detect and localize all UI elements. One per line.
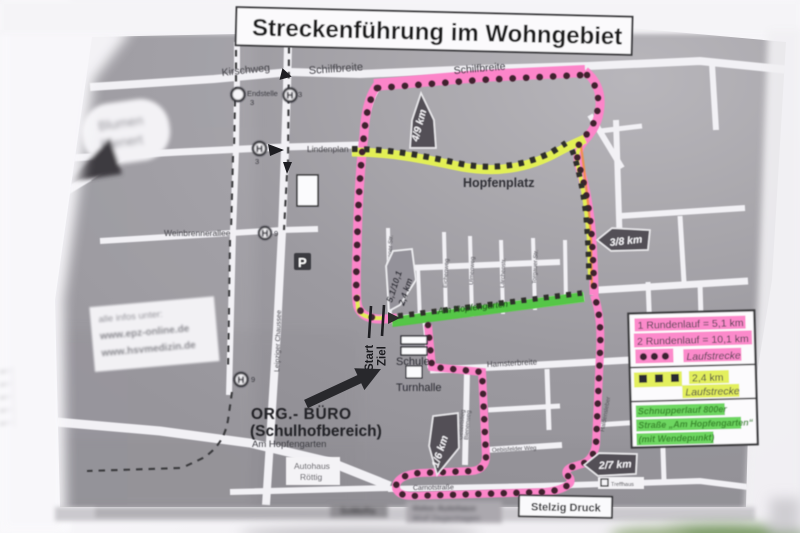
- svg-text:H: H: [256, 144, 263, 155]
- svg-text:Ziel: Ziel: [377, 346, 389, 366]
- svg-text:Laufstrecke: Laufstrecke: [686, 350, 741, 363]
- svg-text:Autohaus: Autohaus: [294, 461, 330, 471]
- svg-text:Lindenplan: Lindenplan: [307, 144, 349, 154]
- svg-text:P: P: [298, 255, 307, 270]
- svg-text:Am Hopfengarten: Am Hopfengarten: [252, 439, 326, 450]
- svg-text:2/7 km: 2/7 km: [598, 458, 632, 472]
- svg-text:3: 3: [298, 90, 302, 99]
- svg-text:Start: Start: [364, 345, 376, 371]
- svg-text:SoMeRa: SoMeRa: [340, 506, 377, 516]
- svg-text:9: 9: [274, 229, 278, 238]
- svg-text:Schule: Schule: [396, 356, 430, 368]
- svg-text:Wolf Degenhagen: Wolf Degenhagen: [412, 513, 480, 523]
- svg-text:Weinbrennerallee: Weinbrennerallee: [164, 228, 231, 238]
- svg-text:Röttig: Röttig: [300, 472, 322, 482]
- svg-text:Carnotstraße: Carnotstraße: [413, 484, 454, 492]
- svg-text:Endstelle: Endstelle: [247, 89, 278, 98]
- svg-text:Hopfenplatz: Hopfenplatz: [463, 176, 535, 190]
- svg-text:H: H: [238, 375, 245, 386]
- svg-text:H: H: [287, 91, 294, 102]
- svg-text:ORG.- BÜRO: ORG.- BÜRO: [251, 406, 352, 423]
- svg-text:H: H: [262, 229, 269, 240]
- svg-text:3: 3: [250, 98, 254, 107]
- svg-text:3: 3: [255, 157, 259, 166]
- svg-text:2,4 km: 2,4 km: [692, 372, 724, 385]
- svg-text:(Schulhofbereich): (Schulhofbereich): [250, 423, 382, 440]
- svg-text:9: 9: [251, 375, 255, 384]
- svg-text:Volvo Autohaus: Volvo Autohaus: [412, 503, 476, 513]
- svg-text:Stelzig Druck: Stelzig Druck: [531, 501, 602, 514]
- svg-text:Treffhaus: Treffhaus: [611, 482, 634, 488]
- svg-text:Laufstrecke: Laufstrecke: [685, 385, 740, 398]
- svg-text:Turnhalle: Turnhalle: [396, 382, 441, 394]
- svg-text:(mit Wendepunkt): (mit Wendepunkt): [638, 432, 714, 444]
